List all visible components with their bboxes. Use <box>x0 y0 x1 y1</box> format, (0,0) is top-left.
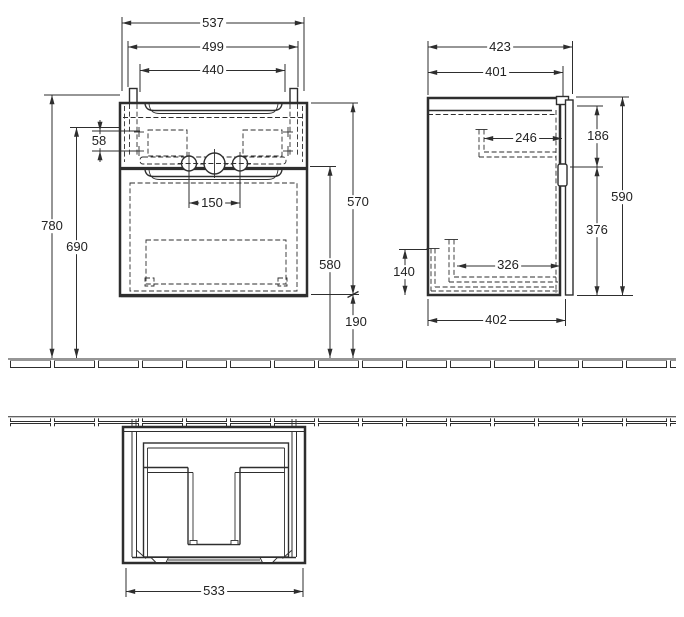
dim-side-siphon-recess-height: 140 <box>391 265 417 279</box>
dim-front-mounting-height: 690 <box>64 240 90 254</box>
bottom-drawer-cutout <box>132 443 296 563</box>
floor-hatch <box>8 359 676 369</box>
technical-drawing-canvas: 537 499 440 58 150 780 690 570 580 190 4… <box>0 0 684 617</box>
dim-side-siphon-recess-depth: 326 <box>495 258 521 272</box>
dim-front-rail-width: 499 <box>200 40 226 54</box>
dim-front-bracket-hole-spacing: 58 <box>90 134 108 148</box>
wall-hatch <box>8 417 676 427</box>
dim-front-inner-width: 440 <box>200 63 226 77</box>
dim-front-rim-to-floor: 580 <box>317 258 343 272</box>
drawing-linework <box>0 0 684 617</box>
dim-front-cabinet-height: 570 <box>345 195 371 209</box>
dim-side-bottom-depth: 402 <box>483 313 509 327</box>
dim-side-overall-depth: 423 <box>487 40 513 54</box>
dim-front-overall-height: 780 <box>39 219 65 233</box>
dim-front-overall-width: 537 <box>200 16 226 30</box>
dim-side-upper-section-height: 186 <box>585 129 611 143</box>
dim-front-floor-clearance: 190 <box>343 315 369 329</box>
dim-side-lower-section-height: 376 <box>584 223 610 237</box>
dim-side-upper-recess-depth: 246 <box>513 131 539 145</box>
dim-front-tap-hole-spacing: 150 <box>199 196 225 210</box>
dim-bottom-overall-width: 533 <box>201 584 227 598</box>
bottom-view <box>123 419 305 597</box>
dim-side-carcass-depth: 401 <box>483 65 509 79</box>
front-cabinet-outline <box>120 89 307 297</box>
side-view <box>399 41 633 326</box>
dim-side-side-height: 590 <box>609 190 635 204</box>
